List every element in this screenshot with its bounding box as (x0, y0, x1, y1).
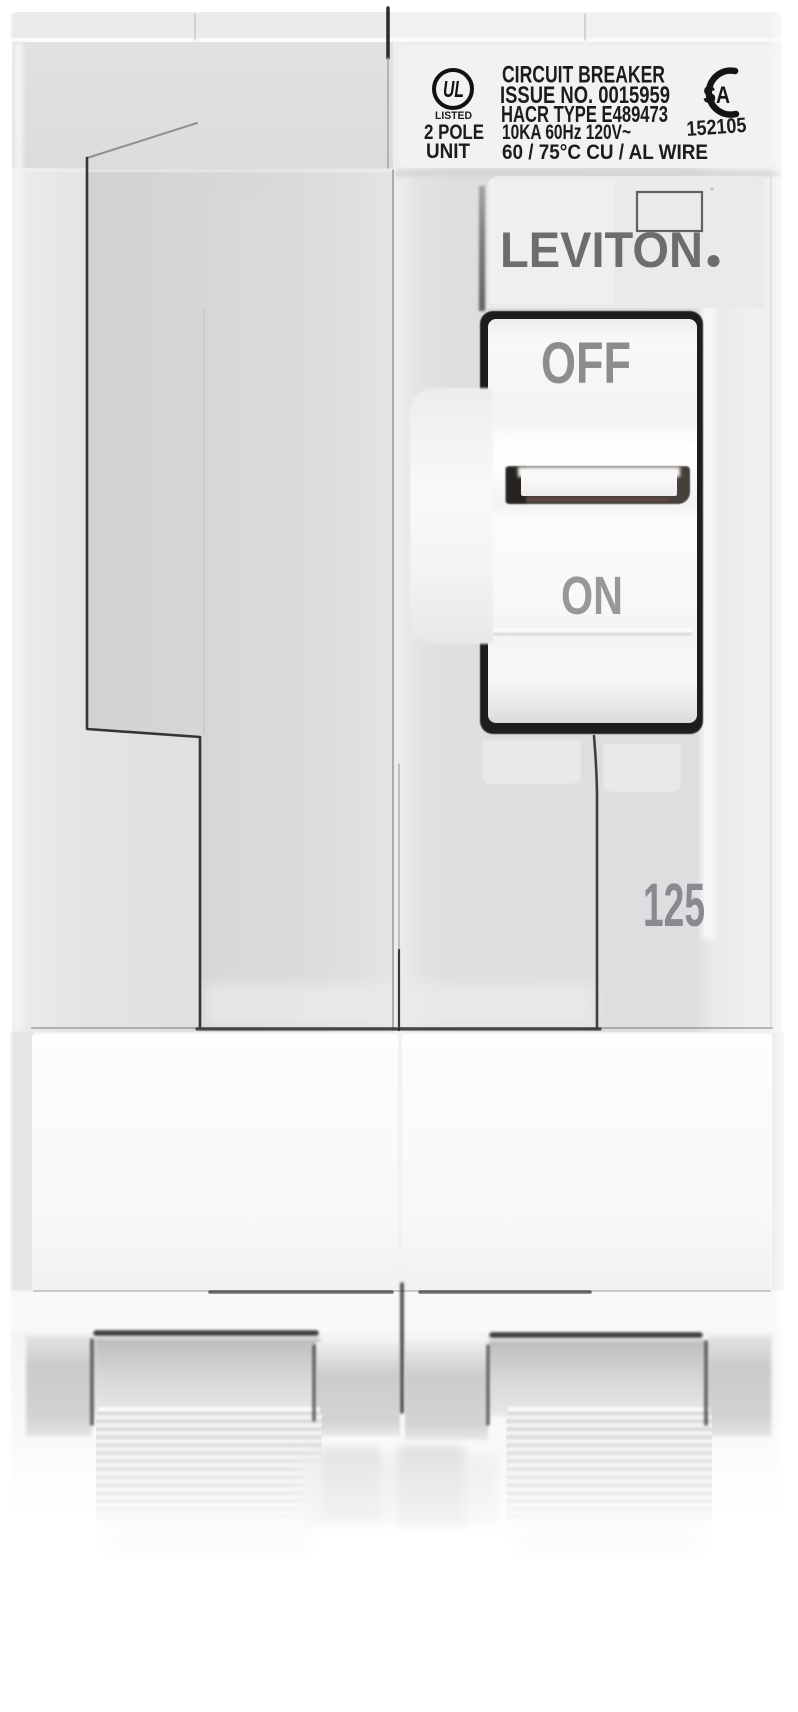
svg-text:ON: ON (561, 566, 623, 626)
svg-text:LISTED: LISTED (435, 110, 472, 122)
svg-text:SA: SA (703, 82, 730, 109)
svg-text:LEVITON: LEVITON (500, 222, 703, 278)
svg-text:UNIT: UNIT (426, 140, 470, 163)
svg-text:152105: 152105 (686, 114, 748, 141)
svg-text:125: 125 (643, 871, 705, 939)
svg-text:UL: UL (443, 76, 464, 102)
svg-text:OFF: OFF (541, 331, 631, 396)
svg-text:60 / 75°C CU / AL WIRE: 60 / 75°C CU / AL WIRE (502, 141, 708, 164)
